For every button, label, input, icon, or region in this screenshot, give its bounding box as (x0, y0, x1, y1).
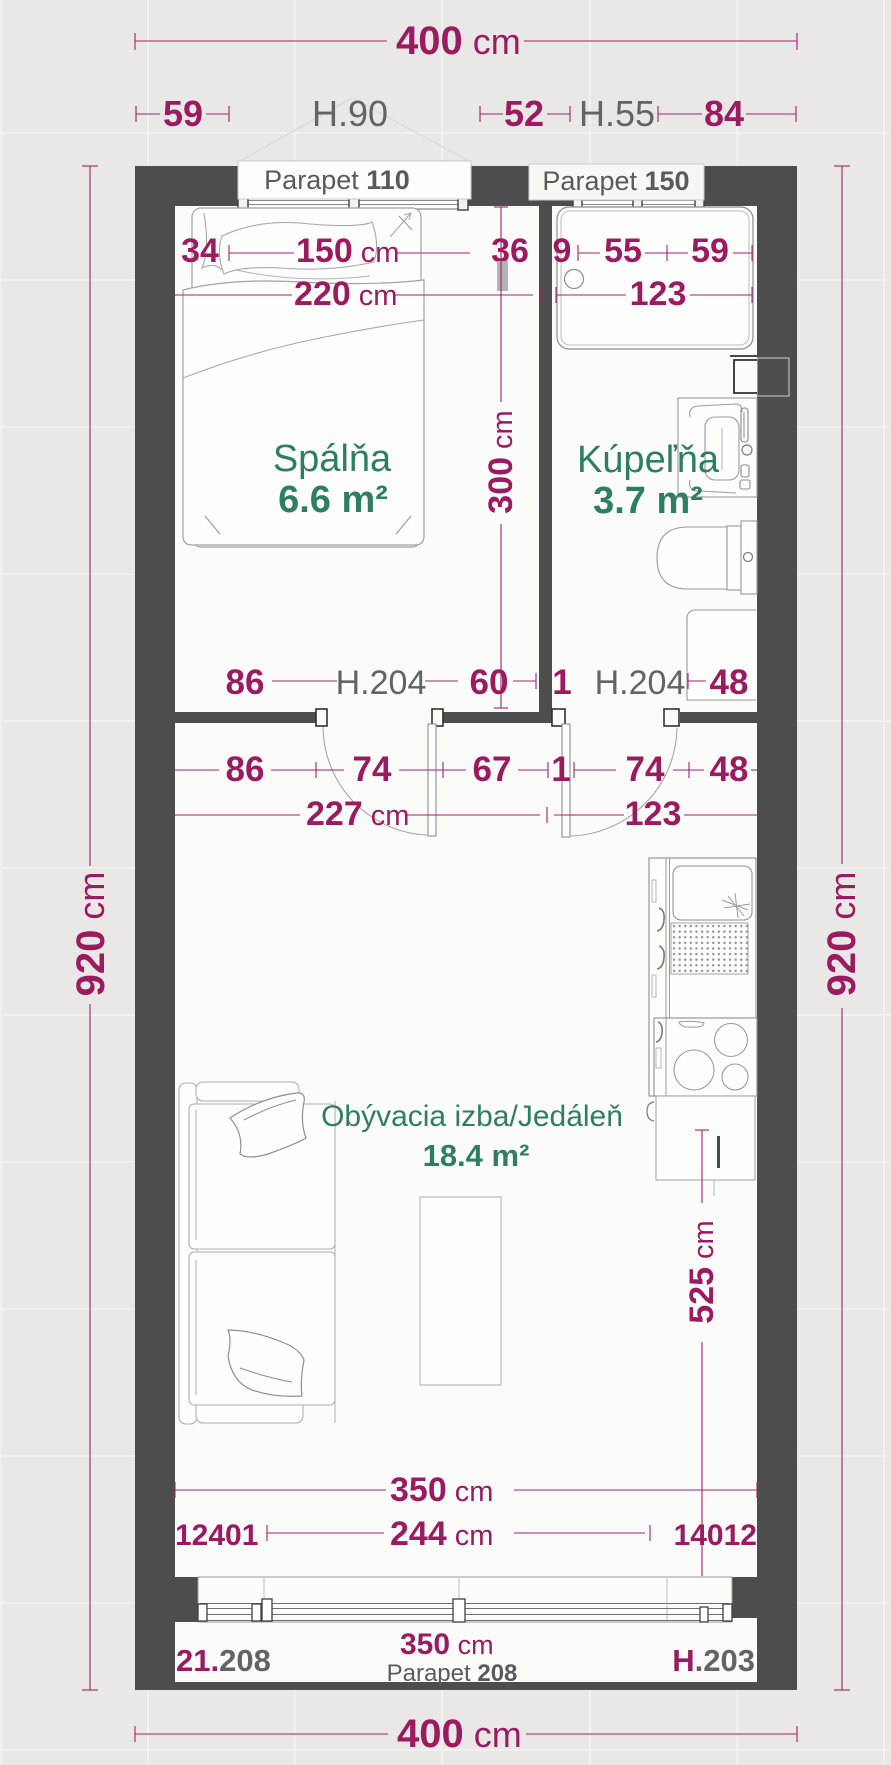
svg-text:74: 74 (353, 750, 392, 789)
svg-text:Spálňa: Spálňa (273, 438, 392, 480)
svg-text:21.208: 21.208 (176, 1643, 271, 1678)
svg-text:244 cm: 244 cm (390, 1515, 493, 1553)
svg-text:150 cm: 150 cm (296, 232, 399, 270)
svg-text:Parapet 110: Parapet 110 (264, 165, 410, 195)
svg-text:74: 74 (626, 750, 665, 789)
svg-text:H.204: H.204 (336, 664, 427, 702)
svg-text:52: 52 (504, 93, 544, 134)
svg-text:9: 9 (553, 232, 572, 270)
svg-text:36: 36 (491, 232, 529, 270)
svg-text:920 cm: 920 cm (820, 872, 864, 997)
svg-text:400 cm: 400 cm (397, 1712, 522, 1756)
svg-text:350 cm: 350 cm (400, 1628, 494, 1661)
svg-text:3.7 m²: 3.7 m² (593, 480, 703, 522)
svg-text:350 cm: 350 cm (390, 1471, 493, 1509)
svg-text:920 cm: 920 cm (69, 872, 113, 997)
svg-text:1: 1 (552, 663, 571, 702)
svg-text:1: 1 (551, 750, 570, 789)
svg-text:Kúpeľňa: Kúpeľňa (577, 439, 720, 481)
svg-text:86: 86 (226, 663, 265, 702)
svg-text:525 cm: 525 cm (683, 1220, 721, 1323)
svg-text:55: 55 (604, 232, 642, 270)
svg-text:48: 48 (710, 663, 749, 702)
svg-text:12401: 12401 (175, 1519, 258, 1552)
svg-text:400 cm: 400 cm (396, 19, 521, 63)
svg-text:227 cm: 227 cm (306, 795, 409, 833)
svg-text:14012: 14012 (674, 1519, 757, 1552)
svg-text:123: 123 (630, 275, 687, 313)
svg-text:H.55: H.55 (579, 93, 655, 134)
svg-text:6.6 m²: 6.6 m² (278, 479, 388, 521)
svg-text:Parapet 208: Parapet 208 (387, 1660, 518, 1687)
svg-text:60: 60 (470, 663, 509, 702)
svg-text:59: 59 (163, 93, 203, 134)
svg-text:84: 84 (704, 93, 744, 134)
svg-text:220 cm: 220 cm (294, 275, 397, 313)
svg-text:34: 34 (181, 232, 219, 270)
svg-text:H.203: H.203 (672, 1643, 755, 1678)
svg-text:Obývacia izba/Jedáleň: Obývacia izba/Jedáleň (321, 1100, 623, 1133)
svg-text:123: 123 (625, 795, 682, 833)
svg-text:86: 86 (226, 750, 265, 789)
svg-text:59: 59 (691, 232, 729, 270)
svg-text:H.204: H.204 (595, 664, 686, 702)
svg-text:48: 48 (710, 750, 749, 789)
svg-text:H.90: H.90 (312, 93, 388, 134)
svg-text:67: 67 (473, 750, 512, 789)
svg-text:Parapet 150: Parapet 150 (542, 166, 689, 196)
svg-text:300 cm: 300 cm (482, 410, 520, 513)
svg-text:18.4 m²: 18.4 m² (423, 1138, 530, 1173)
